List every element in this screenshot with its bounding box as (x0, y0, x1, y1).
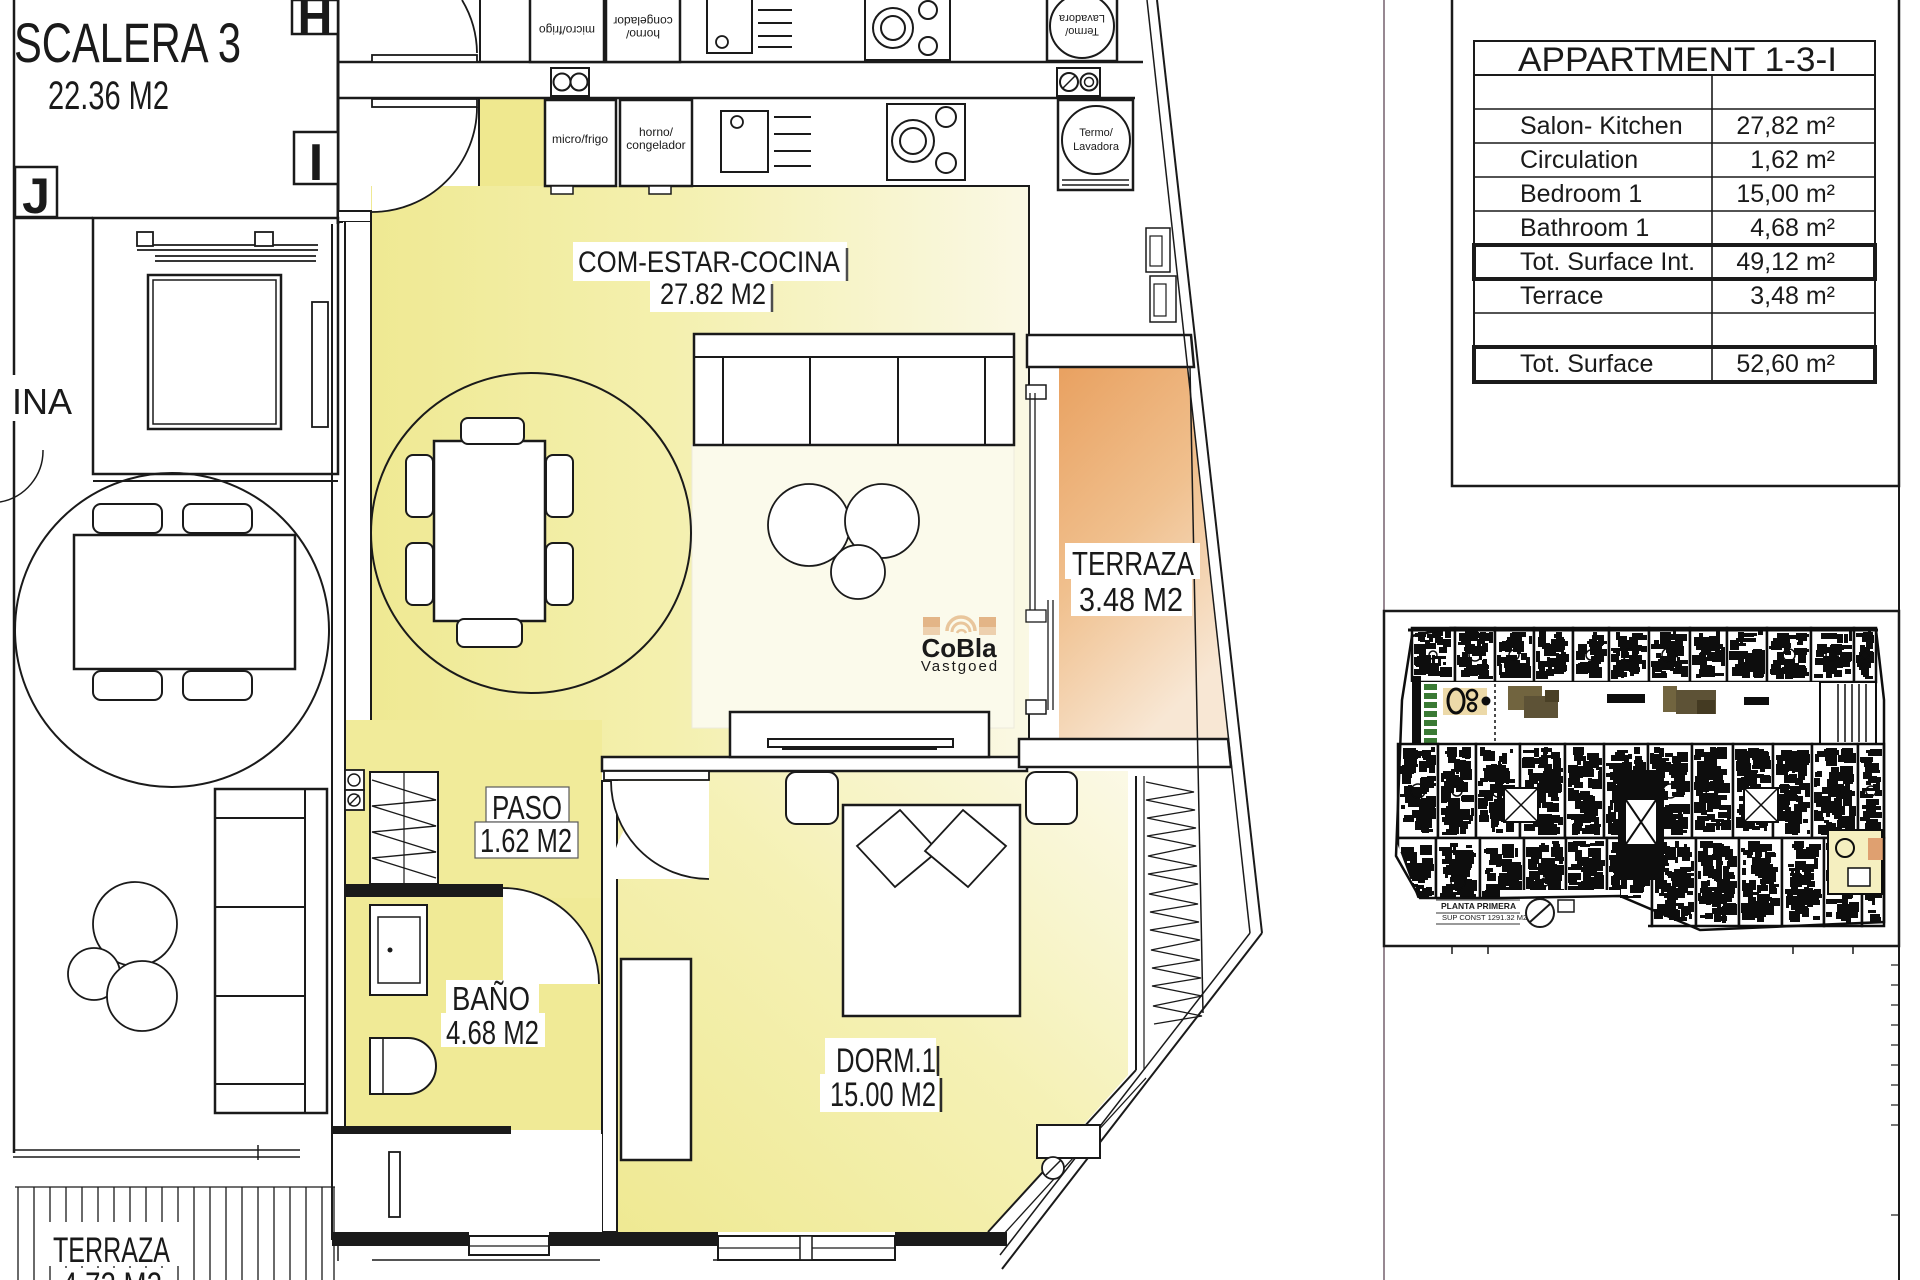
svg-text:horno/: horno/ (639, 125, 674, 139)
svg-text:micro/frigo: micro/frigo (539, 23, 595, 37)
svg-text:BAÑO: BAÑO (452, 980, 530, 1017)
svg-text:27,82 m²: 27,82 m² (1736, 112, 1835, 140)
svg-text:SCALERA 3: SCALERA 3 (14, 11, 241, 74)
svg-text:TERRAZA: TERRAZA (1072, 545, 1194, 582)
svg-text:4.68 M2: 4.68 M2 (446, 1014, 539, 1051)
svg-text:TERRAZA: TERRAZA (53, 1231, 170, 1270)
svg-text:Tot. Surface: Tot. Surface (1520, 350, 1653, 378)
svg-text:52,60 m²: 52,60 m² (1736, 350, 1835, 378)
svg-text:Circulation: Circulation (1520, 146, 1638, 174)
svg-text:Vastgoed: Vastgoed (921, 658, 999, 675)
svg-text:Termo/: Termo/ (1064, 25, 1099, 37)
svg-text:Lavadora: Lavadora (1073, 141, 1120, 153)
svg-text:I: I (309, 134, 323, 192)
svg-text:4.72 M2: 4.72 M2 (62, 1266, 162, 1280)
svg-text:congelador: congelador (626, 138, 685, 152)
svg-text:Termo/: Termo/ (1079, 127, 1114, 139)
svg-text:PASO: PASO (492, 789, 562, 826)
svg-text:COM-ESTAR-COCINA: COM-ESTAR-COCINA (578, 246, 840, 279)
svg-text:Tot. Surface Int.: Tot. Surface Int. (1520, 248, 1695, 276)
svg-text:J: J (22, 168, 50, 224)
svg-text:22.36 M2: 22.36 M2 (48, 74, 169, 118)
svg-text:Terrace: Terrace (1520, 282, 1603, 310)
svg-text:27.82 M2: 27.82 M2 (660, 278, 766, 311)
svg-text:15.00 M2: 15.00 M2 (830, 1076, 936, 1114)
svg-text:3,48 m²: 3,48 m² (1750, 282, 1835, 310)
svg-text:Lavadora: Lavadora (1058, 12, 1105, 24)
svg-text:INA: INA (12, 381, 72, 422)
svg-text:3.48 M2: 3.48 M2 (1079, 581, 1183, 618)
svg-text:APPARTMENT 1-3-I: APPARTMENT 1-3-I (1518, 41, 1837, 79)
svg-text:DORM.1: DORM.1 (836, 1042, 936, 1080)
svg-text:Salon- Kitchen: Salon- Kitchen (1520, 112, 1683, 140)
svg-text:SUP CONST 1291.32 M2: SUP CONST 1291.32 M2 (1442, 913, 1527, 922)
svg-text:1,62 m²: 1,62 m² (1750, 146, 1835, 174)
svg-text:49,12 m²: 49,12 m² (1736, 248, 1835, 276)
svg-text:PLANTA PRIMERA: PLANTA PRIMERA (1441, 901, 1516, 911)
svg-text:1.62 M2: 1.62 M2 (480, 822, 572, 859)
svg-text:15,00 m²: 15,00 m² (1736, 180, 1835, 208)
svg-text:H: H (298, 0, 333, 44)
svg-text:Bathroom 1: Bathroom 1 (1520, 214, 1649, 242)
svg-text:4,68 m²: 4,68 m² (1750, 214, 1835, 242)
svg-text:micro/frigo: micro/frigo (552, 132, 608, 146)
svg-text:Bedroom 1: Bedroom 1 (1520, 180, 1642, 208)
svg-text:congelador: congelador (613, 14, 672, 28)
svg-text:horno/: horno/ (625, 27, 660, 41)
